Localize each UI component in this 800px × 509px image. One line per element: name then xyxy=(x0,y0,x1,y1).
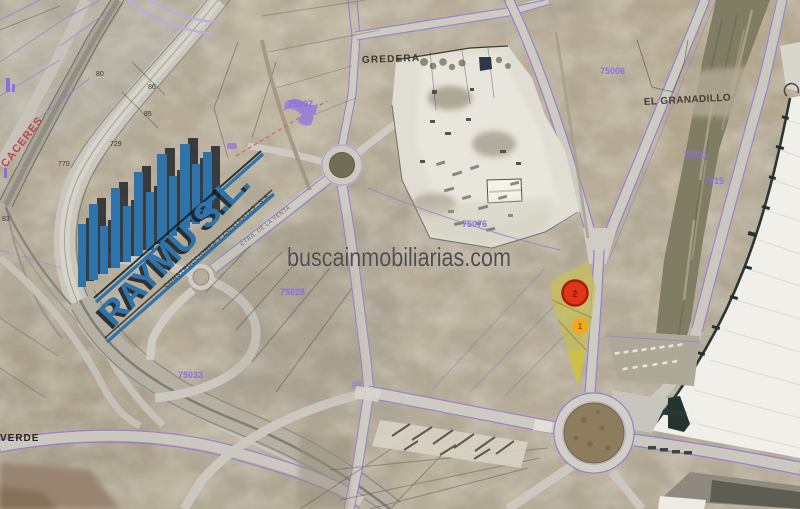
svg-text:1: 1 xyxy=(578,322,583,331)
svg-text:7015: 7015 xyxy=(704,176,724,186)
svg-text:VERDE: VERDE xyxy=(0,433,39,444)
svg-text:729: 729 xyxy=(110,141,122,148)
svg-text:75076: 75076 xyxy=(462,219,487,229)
svg-text:75097: 75097 xyxy=(288,99,313,109)
svg-text:buscainmobiliarias.com: buscainmobiliarias.com xyxy=(287,242,511,272)
svg-text:75091: 75091 xyxy=(683,150,708,160)
svg-text:2: 2 xyxy=(572,289,577,299)
svg-text:75028: 75028 xyxy=(280,287,305,297)
svg-text:75006: 75006 xyxy=(600,66,625,76)
svg-text:86: 86 xyxy=(148,84,156,91)
svg-text:85: 85 xyxy=(144,111,152,118)
svg-text:75033: 75033 xyxy=(178,370,203,380)
svg-text:83: 83 xyxy=(2,216,10,223)
svg-text:770: 770 xyxy=(58,161,70,168)
svg-text:GREDERA: GREDERA xyxy=(362,53,421,66)
svg-text:80: 80 xyxy=(96,71,104,78)
